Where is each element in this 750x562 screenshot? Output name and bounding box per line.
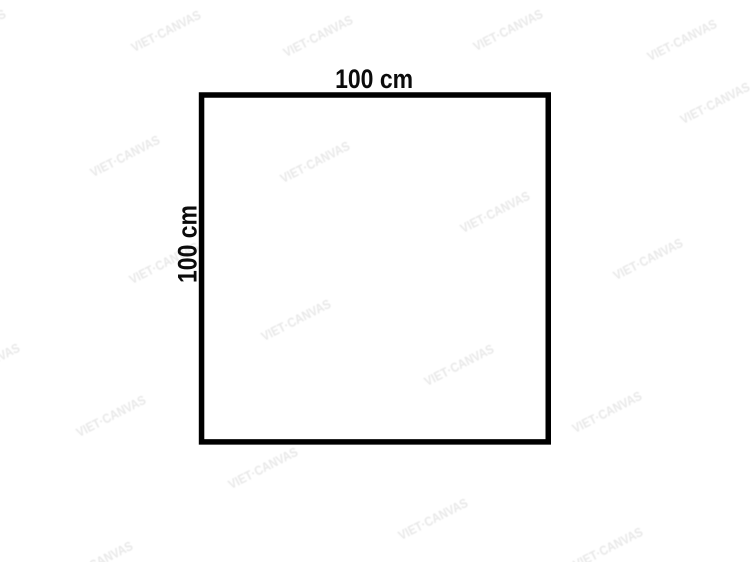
svg-text:100 cm: 100 cm xyxy=(335,64,413,94)
svg-text:100 cm: 100 cm xyxy=(173,205,203,283)
